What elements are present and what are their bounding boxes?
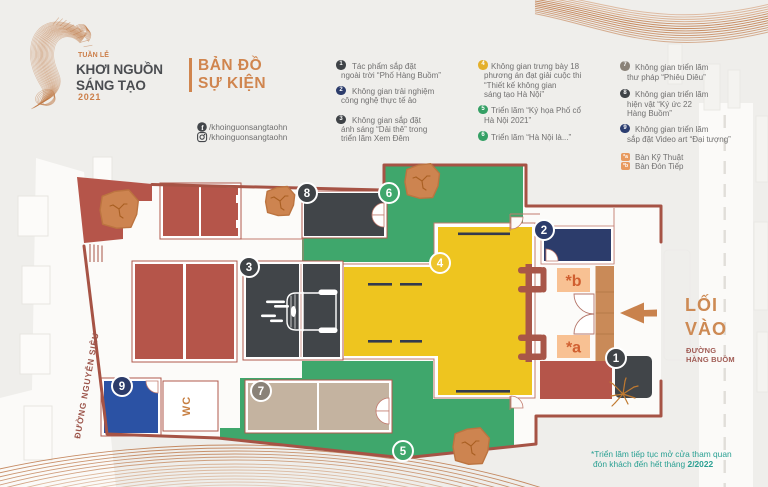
svg-text:*b: *b xyxy=(566,273,582,290)
svg-text:7: 7 xyxy=(258,386,264,398)
svg-text:1: 1 xyxy=(613,353,620,365)
svg-text:*a: *a xyxy=(566,340,581,357)
svg-text:4: 4 xyxy=(437,258,444,270)
svg-text:ĐƯỜNG NGUYỄN SIÊU: ĐƯỜNG NGUYỄN SIÊU xyxy=(71,331,101,439)
svg-text:3: 3 xyxy=(246,262,252,274)
svg-text:2: 2 xyxy=(541,225,547,237)
svg-text:8: 8 xyxy=(304,188,311,200)
svg-text:5: 5 xyxy=(400,446,407,458)
svg-text:WC: WC xyxy=(181,396,193,416)
svg-text:6: 6 xyxy=(386,188,392,200)
svg-text:9: 9 xyxy=(119,381,125,393)
